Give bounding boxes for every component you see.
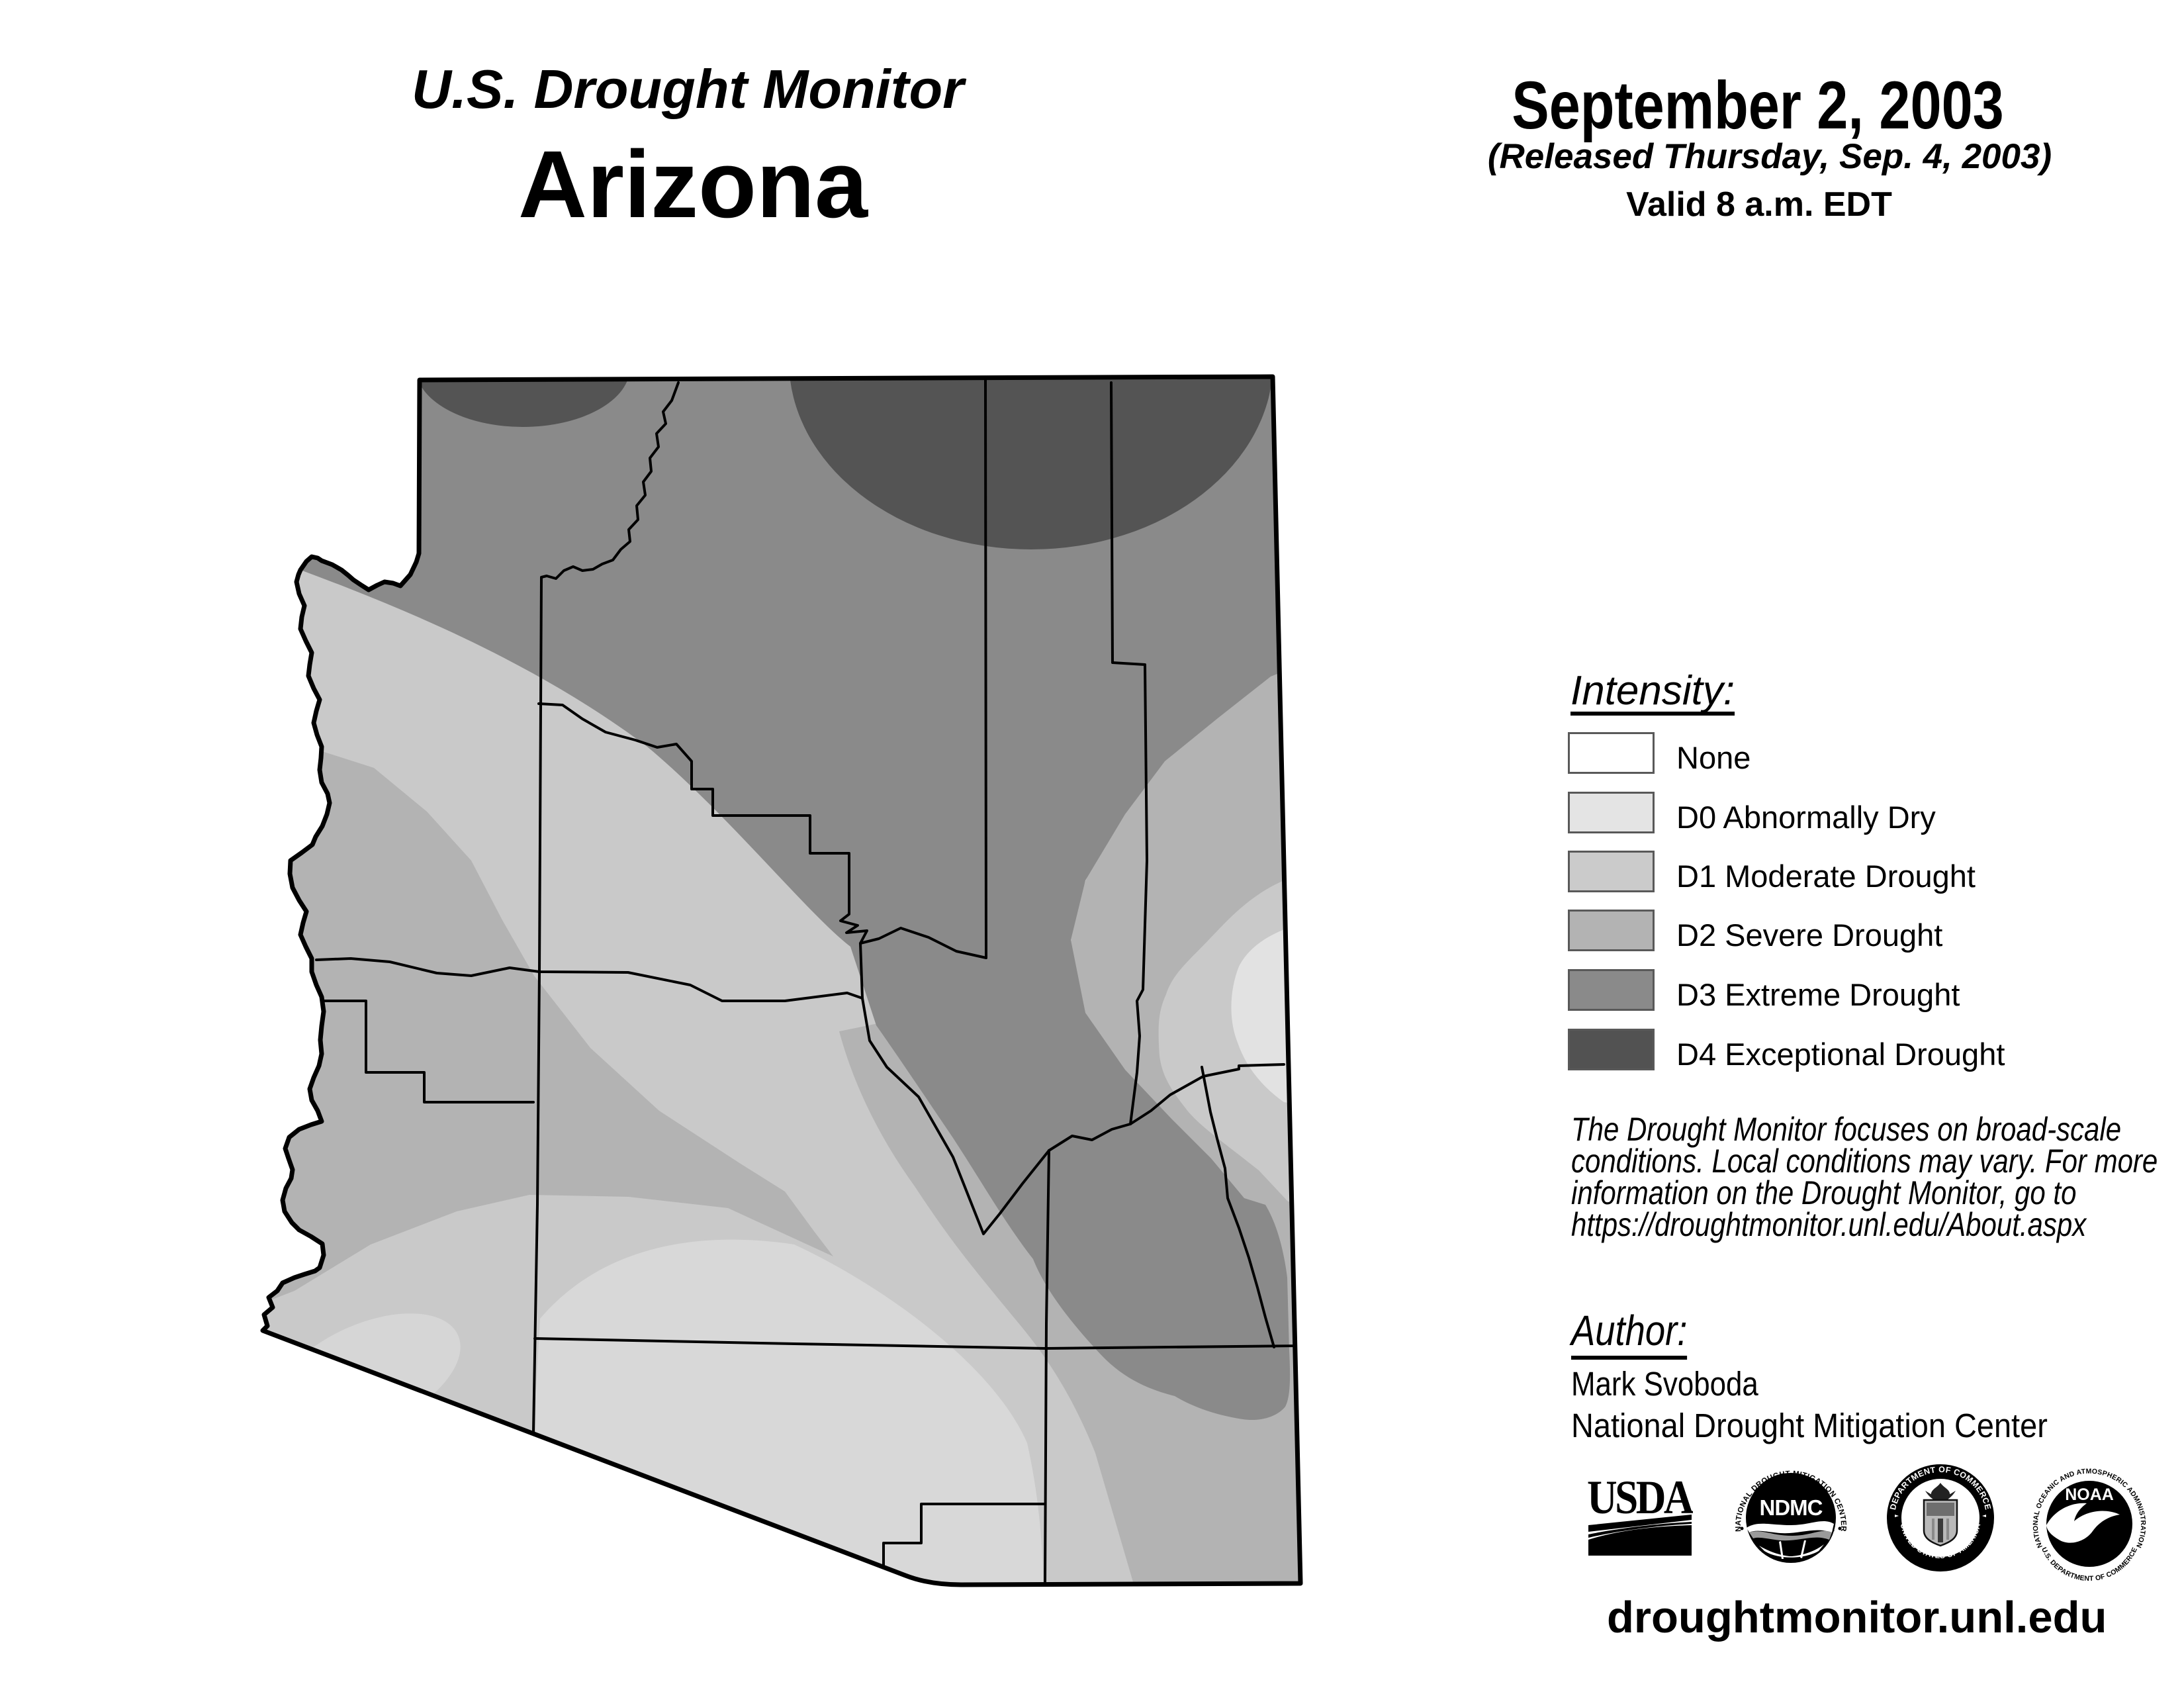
svg-text:NDMC: NDMC bbox=[1760, 1495, 1823, 1520]
svg-text:NOAA: NOAA bbox=[2065, 1485, 2114, 1504]
